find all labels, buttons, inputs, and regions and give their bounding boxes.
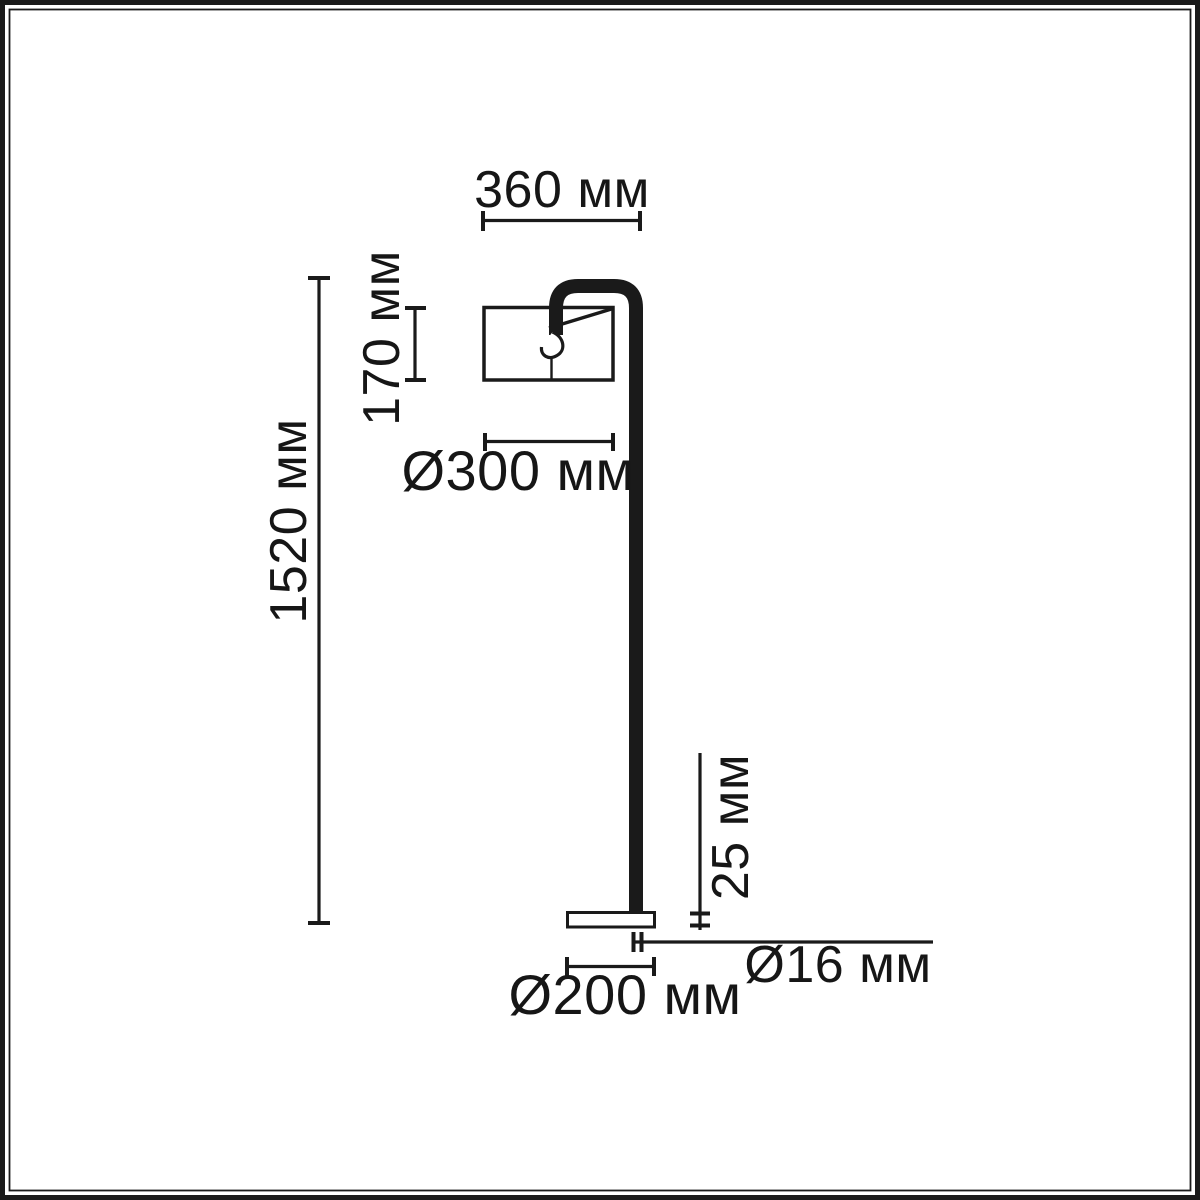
dimension-label-total-height: 1520 мм [260, 418, 318, 623]
dimension-label-shade-diameter: Ø300 мм [401, 439, 634, 502]
dimension-label-base-thickness: 25 мм [702, 754, 760, 900]
dimension-label-base-diameter: Ø200 мм [508, 963, 741, 1026]
lamp-base [568, 913, 655, 928]
dimension-label-pole-diameter: Ø16 мм [744, 936, 931, 994]
dimension-label-top-width: 360 мм [474, 161, 650, 219]
dimension-label-shade-height: 170 мм [353, 250, 411, 426]
dimension-drawing-canvas: 360 мм 170 мм Ø300 мм 1520 мм 25 мм Ø16 … [0, 0, 1200, 1200]
